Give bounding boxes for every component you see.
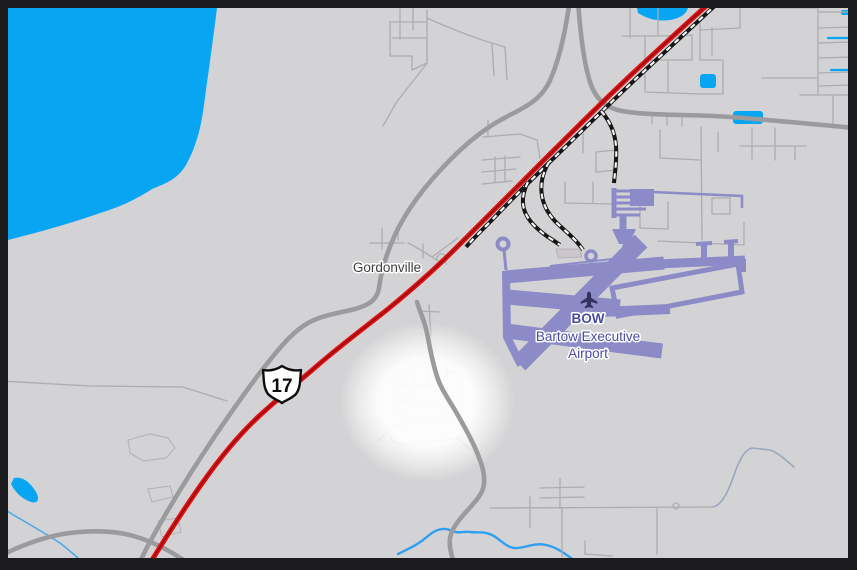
hangar-block (630, 189, 654, 206)
route-number: 17 (271, 376, 292, 397)
airport-name-label: Bartow Executive (536, 329, 640, 344)
map-viewport: Gordonville BOW Bartow Executive Airport… (0, 0, 857, 570)
runway-middle (507, 297, 620, 307)
basemap: Gordonville BOW Bartow Executive Airport… (0, 0, 855, 560)
apron-edge (600, 309, 670, 312)
taxiway-stub-cap (696, 243, 712, 244)
map-canvas[interactable]: Gordonville BOW Bartow Executive Airport… (0, 0, 857, 570)
town-label: Gordonville (353, 260, 421, 275)
taxiway-stub-cap (724, 241, 738, 242)
airport-name-label-2: Airport (568, 346, 608, 361)
airport-code-label: BOW (572, 311, 605, 326)
pond (700, 74, 716, 88)
highlight-circle (339, 322, 515, 482)
rail-depot-building (556, 249, 582, 258)
taxiway-ring-stem (504, 250, 506, 270)
